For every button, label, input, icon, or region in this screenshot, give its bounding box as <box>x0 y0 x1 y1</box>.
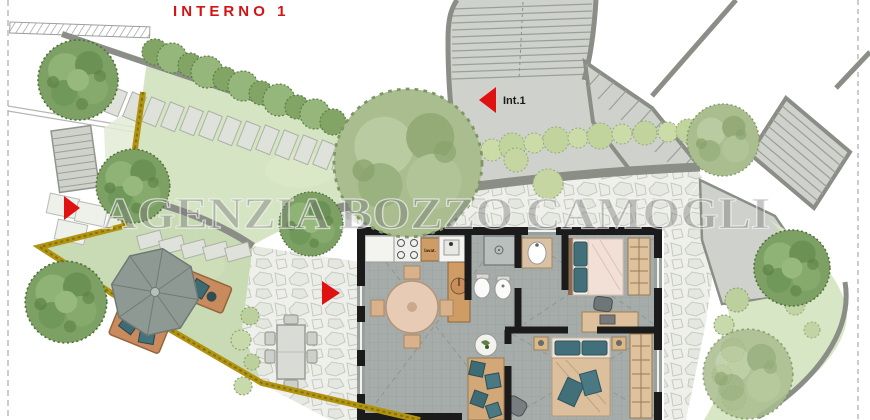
building-floorplan: lavat. <box>358 228 662 420</box>
tree <box>687 104 759 176</box>
tree <box>25 261 107 343</box>
unit-label: Int.1 <box>503 95 526 107</box>
agency-watermark: AGENZIA BOZZO CAMOGLI <box>102 189 770 238</box>
tree <box>703 329 793 419</box>
appliance-label: lavat. <box>424 248 436 253</box>
washbasin <box>522 238 552 268</box>
desk-chair <box>593 296 613 312</box>
toilet <box>474 278 490 298</box>
tree <box>754 230 830 306</box>
floor-plan-image: lavat. <box>0 0 870 420</box>
page-title: INTERNO 1 <box>173 3 286 20</box>
bidet <box>495 279 511 299</box>
west-staircase <box>51 126 99 193</box>
site-plan: lavat. <box>0 0 870 420</box>
tree <box>38 40 118 120</box>
